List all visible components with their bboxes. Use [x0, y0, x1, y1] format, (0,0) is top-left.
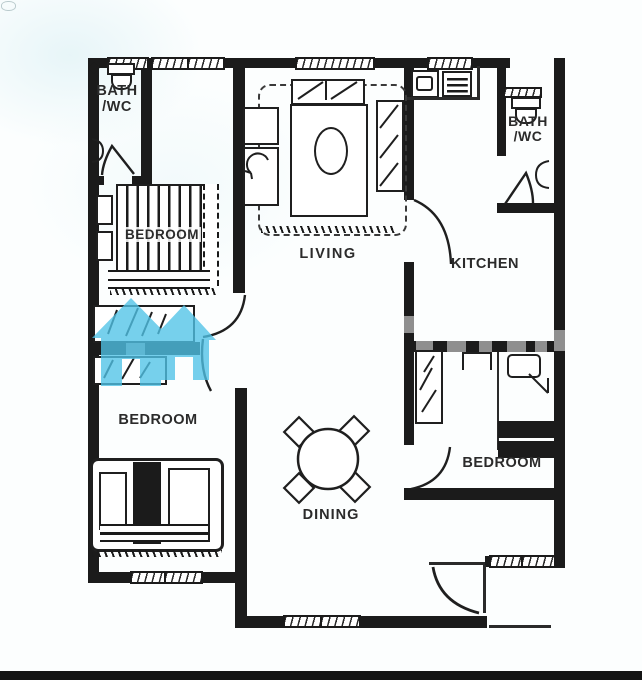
living-label-text: LIVING: [299, 246, 356, 262]
door-arc: [414, 200, 451, 264]
desk-icon: [462, 352, 492, 370]
watermark-gray-patch: [554, 330, 565, 351]
window-symbol: [130, 571, 166, 584]
bed-foot-rail: [108, 270, 210, 289]
window-symbol: [295, 57, 375, 70]
entrance-door-arc: [433, 567, 479, 613]
dining-table-icon: [298, 429, 358, 489]
dining-set: [284, 416, 370, 503]
window-symbol: [427, 57, 473, 70]
wall-bath-left-bottom-a: [88, 176, 104, 185]
dining-chairs: [284, 416, 370, 503]
window-symbol: [320, 615, 361, 628]
hatch-strip: [261, 226, 396, 233]
bath-line1: BATH: [96, 83, 137, 99]
window-symbol: [521, 555, 556, 568]
room-label-bedroom-bottom-left: BEDROOM: [112, 413, 204, 429]
window-symbol: [164, 571, 203, 584]
room-label-bedroom-bottom-right: BEDROOM: [455, 456, 549, 472]
chair-icon: [284, 473, 314, 503]
bath-door-leaf: [102, 146, 134, 175]
chair-icon: [284, 417, 314, 447]
room-label-kitchen: KITCHEN: [445, 257, 525, 273]
bedroom-label-text: BEDROOM: [462, 455, 541, 471]
room-label-living: LIVING: [290, 247, 366, 263]
nightstand-icon: [96, 195, 113, 225]
counter-edge: [407, 97, 480, 100]
window-symbol: [151, 57, 189, 70]
room-label-bath-top-right: BATH /WC: [504, 114, 552, 145]
window-symbol: [489, 555, 523, 568]
kitchen-sink-basin: [416, 76, 433, 91]
bedroom-label-text: BEDROOM: [118, 412, 197, 428]
scan-edge-bar: [0, 671, 642, 680]
wall-bath-right-bottom: [497, 203, 555, 213]
bedroom-label-text: BEDROOM: [123, 227, 201, 242]
hatch-strip: [92, 550, 222, 557]
sofa-icon: [376, 100, 404, 192]
watermark-gray-patch: [404, 316, 414, 333]
counter-edge: [477, 66, 480, 97]
hatch-strip: [110, 288, 216, 295]
door-header-line: [429, 562, 485, 565]
pillow-icon: [99, 472, 127, 530]
built-in-wardrobe-block: [498, 421, 554, 438]
watermark-gray-patch: [479, 341, 492, 352]
door-arc: [202, 339, 211, 391]
stove-icon: [442, 71, 472, 97]
door-arc: [411, 447, 450, 489]
scan-artifact: [1, 1, 16, 11]
floor-plan: BATH /WC BEDROOM LIVING KITCHEN BATH /WC…: [0, 0, 642, 680]
wall-kitchen-left-lower: [404, 262, 414, 445]
wardrobe-icon: [415, 350, 443, 424]
wall-bedroom3-bottom: [404, 488, 565, 500]
porch-edge-line: [489, 625, 551, 628]
door-arc: [203, 295, 245, 337]
armchair-icon: [243, 147, 279, 206]
dining-label-text: DINING: [303, 507, 360, 523]
kitchen-label-text: KITCHEN: [451, 256, 519, 272]
watermark-gray-patch: [507, 341, 526, 352]
stool-icon: [507, 354, 541, 378]
door-frame-line: [483, 565, 486, 613]
bath-line2: /WC: [90, 100, 144, 116]
tv-unit-icon: [291, 79, 365, 105]
watermark-gray-patch: [126, 342, 145, 355]
bath-line2: /WC: [504, 129, 552, 144]
watermark-gray-patch: [535, 341, 547, 352]
wall-dining-left: [235, 388, 247, 628]
window-symbol: [283, 615, 322, 628]
chair-icon: [340, 472, 370, 502]
wall-bath-left-side: [141, 58, 152, 185]
wash-basin-icon: [536, 161, 549, 188]
watermark-gray-patch: [447, 341, 466, 352]
wardrobe-icon: [93, 356, 167, 385]
nightstand-icon: [96, 231, 113, 261]
table-decor-oval: [314, 127, 348, 175]
window-symbol: [187, 57, 225, 70]
armchair-icon: [243, 107, 279, 145]
room-label-dining: DINING: [293, 508, 369, 524]
room-label-bath-top-left: BATH /WC: [90, 84, 144, 116]
room-label-bedroom-top-left: BEDROOM: [117, 228, 207, 243]
wardrobe-icon: [93, 305, 195, 343]
bed-foot-rail: [100, 524, 208, 542]
bath-door-leaf: [505, 173, 533, 204]
chair-icon: [339, 416, 369, 446]
bath-line1: BATH: [508, 113, 548, 129]
